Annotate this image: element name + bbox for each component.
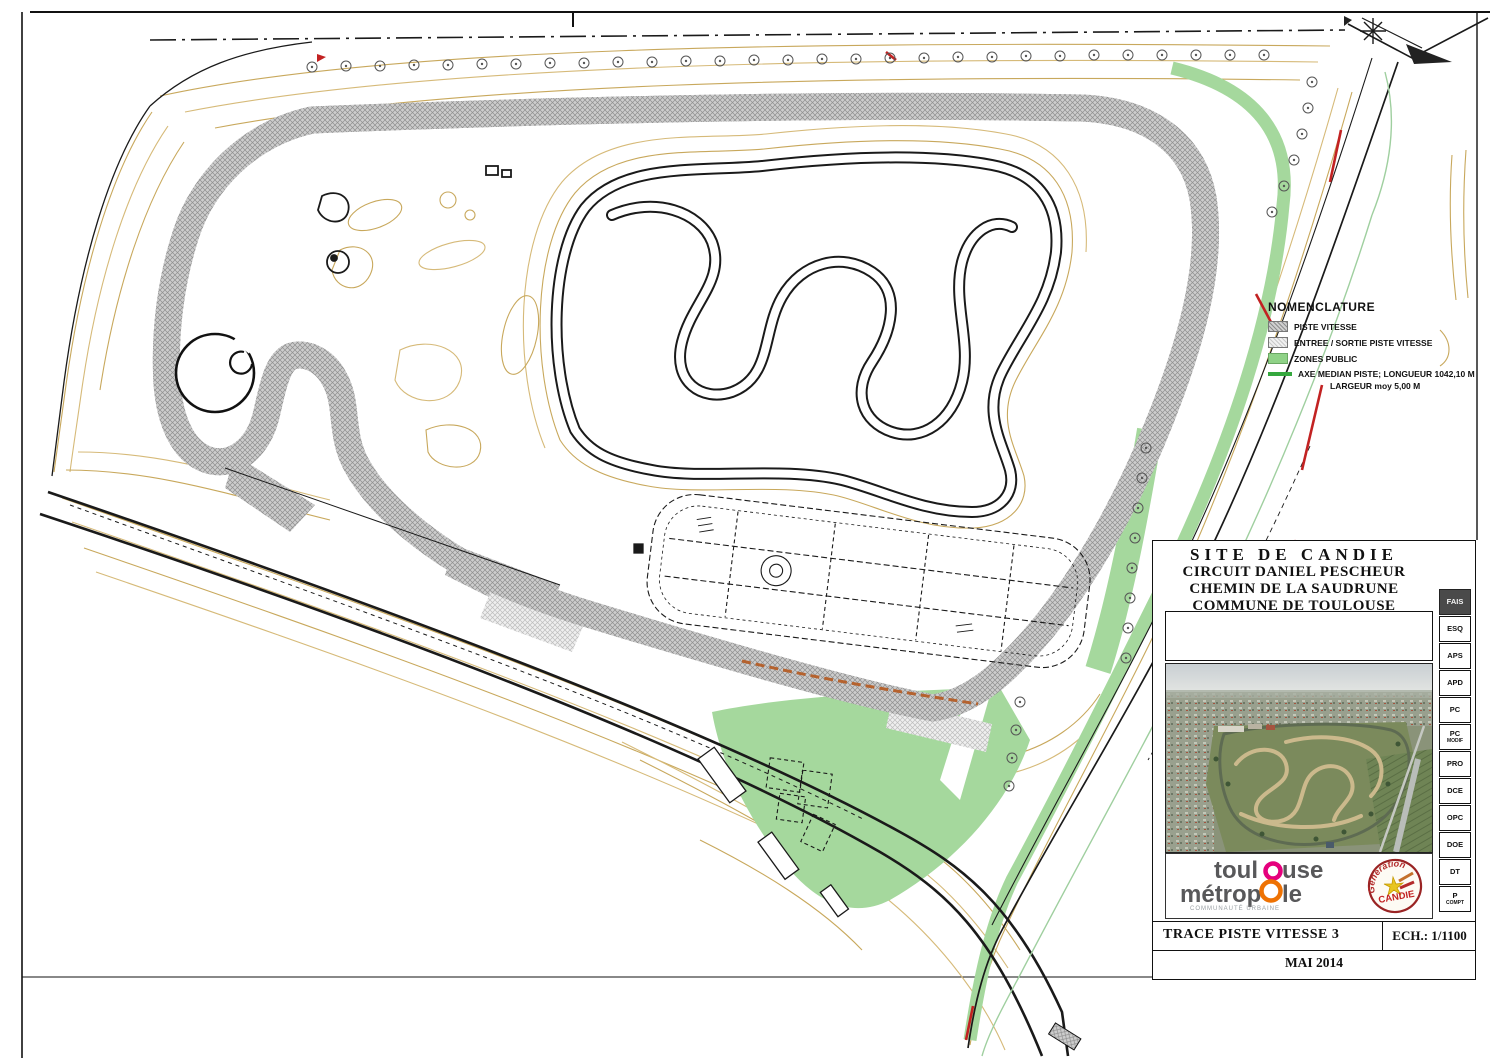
svg-text:métrop: métrop <box>1180 881 1261 908</box>
phase-tab-dce[interactable]: DCE <box>1439 778 1471 804</box>
legend-item-axe-median: AXE MEDIAN PISTE; LONGUEUR 1042,10 M <box>1268 369 1500 379</box>
phase-tab-fais[interactable]: FAIS <box>1439 589 1471 615</box>
toulouse-metropole-logo: toul use métrop le <box>1176 858 1346 913</box>
scale-label: ECH.: 1/1100 <box>1382 922 1476 950</box>
title-block: SITE DE CANDIE CIRCUIT DANIEL PESCHEUR C… <box>1152 540 1476 980</box>
date-row: MAI 2014 <box>1153 949 1475 977</box>
swatch-light-hatch <box>1268 337 1288 348</box>
svg-text:le: le <box>1282 881 1302 908</box>
phase-tab-dt[interactable]: DT <box>1439 859 1471 885</box>
survey-star-icon <box>1360 18 1386 44</box>
phase-tab-pro[interactable]: PRO <box>1439 751 1471 777</box>
swatch-green-line <box>1268 372 1292 376</box>
phase-tab-pc[interactable]: PC <box>1439 697 1471 723</box>
north-entrance <box>1344 16 1488 64</box>
swatch-green <box>1268 353 1288 364</box>
legend-axe-line2: LARGEUR moy 5,00 M <box>1268 381 1500 391</box>
legend-item-entree-sortie: ENTREE / SORTIE PISTE VITESSE <box>1268 337 1500 348</box>
phase-tab-apd[interactable]: APD <box>1439 670 1471 696</box>
hairpin-pond <box>176 329 258 412</box>
circuit-name: CIRCUIT DANIEL PESCHEUR <box>1153 564 1435 581</box>
drawing-title-row: TRACE PISTE VITESSE 3 ECH.: 1/1100 <box>1153 921 1475 951</box>
legend-item-piste-vitesse: PISTE VITESSE <box>1268 321 1500 332</box>
kart-track <box>318 157 1056 512</box>
phase-tab-aps[interactable]: APS <box>1439 643 1471 669</box>
swatch-dark-hatch <box>1268 321 1288 332</box>
toulouse-metropole-subtitle: COMMUNAUTÉ URBAINE <box>1190 906 1280 912</box>
candie-stamp-logo: Génération CANDIE <box>1366 857 1424 920</box>
logo-eight-top <box>1266 864 1281 879</box>
logo-eight-bottom <box>1262 882 1281 901</box>
roundabout <box>759 554 792 587</box>
legend: NOMENCLATURE PISTE VITESSE ENTREE / SORT… <box>1268 300 1500 391</box>
legend-title: NOMENCLATURE <box>1268 300 1500 314</box>
title-block-header: SITE DE CANDIE CIRCUIT DANIEL PESCHEUR C… <box>1153 545 1435 614</box>
phase-tab-p[interactable]: PCOMPT <box>1439 886 1471 912</box>
drawing-title: TRACE PISTE VITESSE 3 <box>1163 927 1339 943</box>
logos-row: toul use métrop le COMMUNAUTÉ URBAINE Gé… <box>1165 853 1433 919</box>
phase-tab-doe[interactable]: DOE <box>1439 832 1471 858</box>
site-name: SITE DE CANDIE <box>1153 545 1435 564</box>
drawing-sheet: NOMENCLATURE PISTE VITESSE ENTREE / SORT… <box>0 0 1500 1060</box>
drawing-date: MAI 2014 <box>1285 955 1343 971</box>
phase-tab-opc[interactable]: OPC <box>1439 805 1471 831</box>
legend-item-zones-public: ZONES PUBLIC <box>1268 353 1500 364</box>
site-address: CHEMIN DE LA SAUDRUNE <box>1153 581 1435 598</box>
interior-contours <box>332 126 1086 529</box>
aerial-photo <box>1165 663 1433 853</box>
phase-tab-pc-modif[interactable]: PCMODIF <box>1439 724 1471 750</box>
architect-box <box>1165 611 1433 661</box>
phase-tab-esq[interactable]: ESQ <box>1439 616 1471 642</box>
